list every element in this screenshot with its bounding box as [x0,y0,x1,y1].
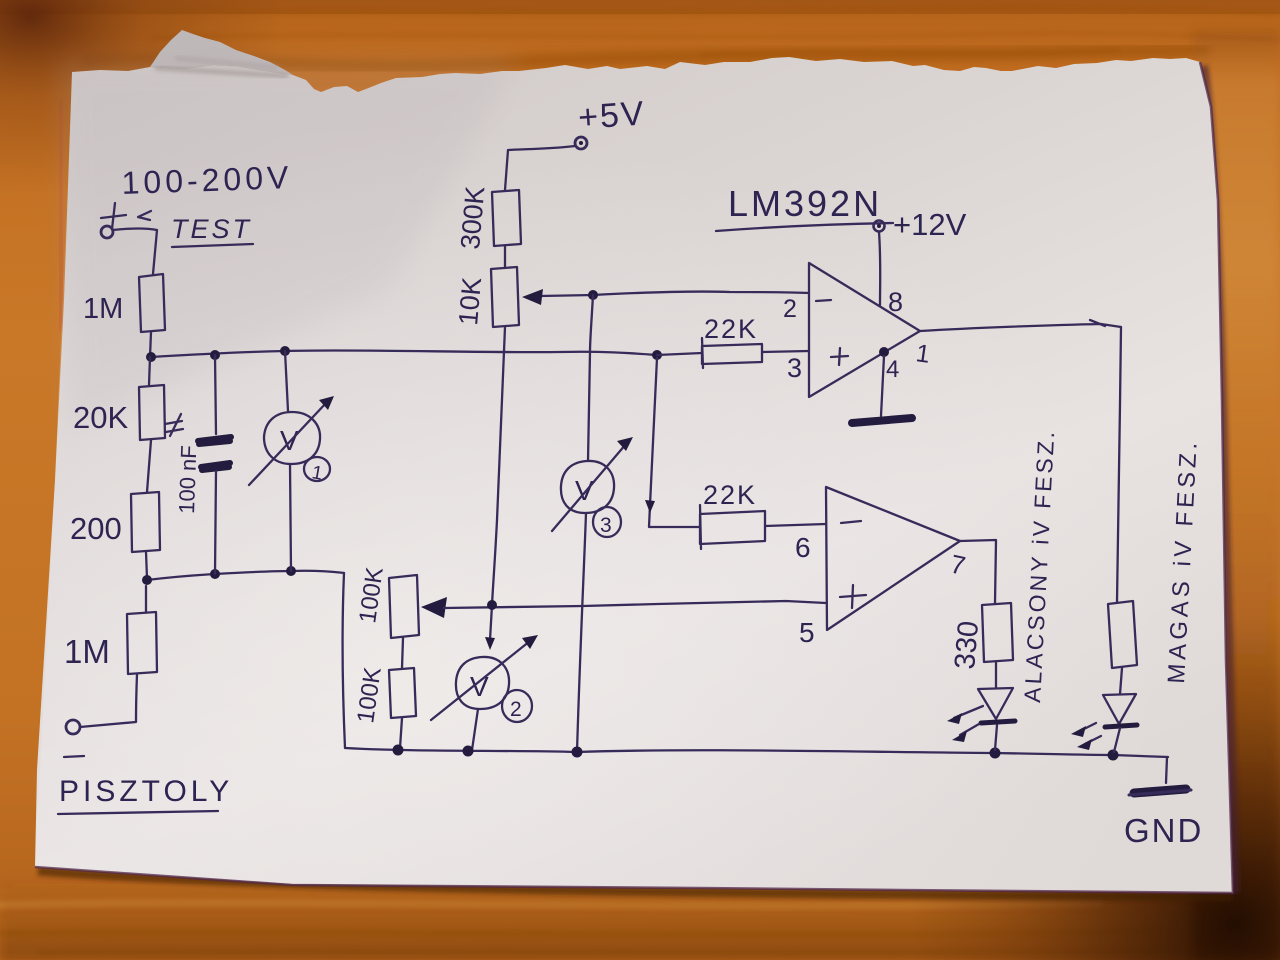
svg-text:5: 5 [799,617,815,648]
svg-text:22K: 22K [704,314,758,344]
svg-text:1M: 1M [83,293,123,325]
svg-text:TEST: TEST [171,214,252,244]
svg-text:100-200V: 100-200V [121,159,293,201]
svg-text:+5V: +5V [577,94,647,137]
svg-text:2: 2 [783,295,797,323]
svg-text:3: 3 [600,514,612,537]
svg-text:100 nF: 100 nF [174,445,201,514]
svg-text:4: 4 [886,356,899,383]
svg-text:GND: GND [1124,812,1203,849]
svg-text:300K: 300K [455,185,490,250]
svg-text:200: 200 [70,511,122,546]
svg-text:10K: 10K [453,276,487,326]
svg-text:+12V: +12V [893,207,967,242]
svg-text:22K: 22K [703,480,757,510]
svg-text:PISZTOLY: PISZTOLY [59,775,233,808]
svg-text:6: 6 [795,532,811,563]
svg-text:2: 2 [510,698,522,721]
svg-text:330: 330 [949,620,985,671]
svg-text:3: 3 [787,353,802,383]
svg-text:LM392N: LM392N [728,183,882,224]
svg-text:1M: 1M [64,633,110,670]
svg-text:20K: 20K [73,400,128,435]
